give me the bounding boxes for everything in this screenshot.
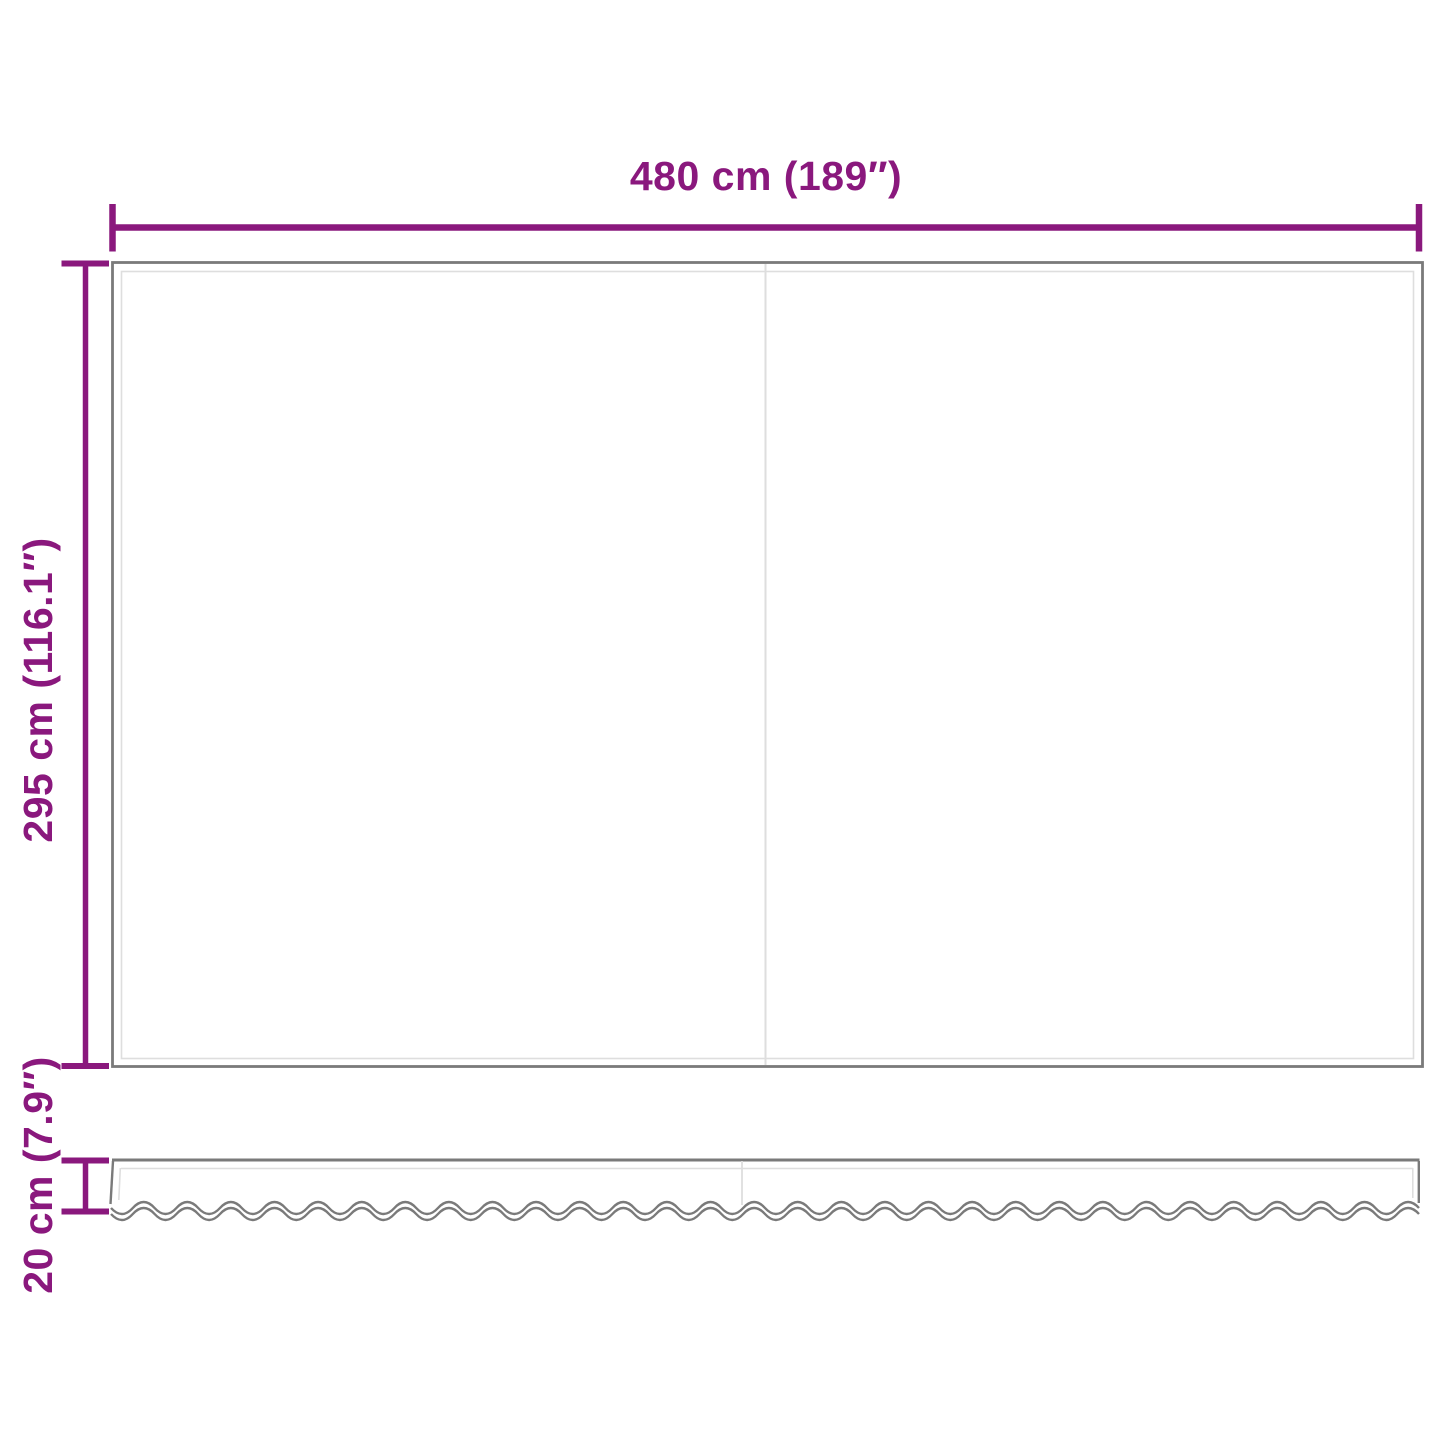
height-dimension: [62, 264, 110, 1067]
dimension-annotations: [62, 204, 1420, 1212]
fabric-light-details: [119, 264, 1414, 1205]
valance-scallop-lower: [111, 1208, 1419, 1220]
height-dimension-label: 295 cm (116.1″): [15, 537, 61, 842]
awning-fabric-diagram: 480 cm (189″) 295 cm (116.1″) 20 cm (7.9…: [0, 0, 1445, 1445]
width-dimension: [113, 204, 1420, 252]
valance-left-edge: [111, 1161, 114, 1204]
fabric-inner-stitch-line: [122, 272, 1414, 1059]
valance-scallop-upper: [111, 1202, 1419, 1214]
valance-inner-left-stitch: [119, 1168, 121, 1200]
valance-height-dimension-label: 20 cm (7.9″): [15, 1056, 61, 1294]
fabric-panel-outline: [113, 263, 1423, 1067]
product-dimension-diagram: 480 cm (189″) 295 cm (116.1″) 20 cm (7.9…: [0, 0, 1445, 1445]
width-dimension-label: 480 cm (189″): [630, 153, 902, 199]
valance-height-dimension: [62, 1161, 110, 1212]
